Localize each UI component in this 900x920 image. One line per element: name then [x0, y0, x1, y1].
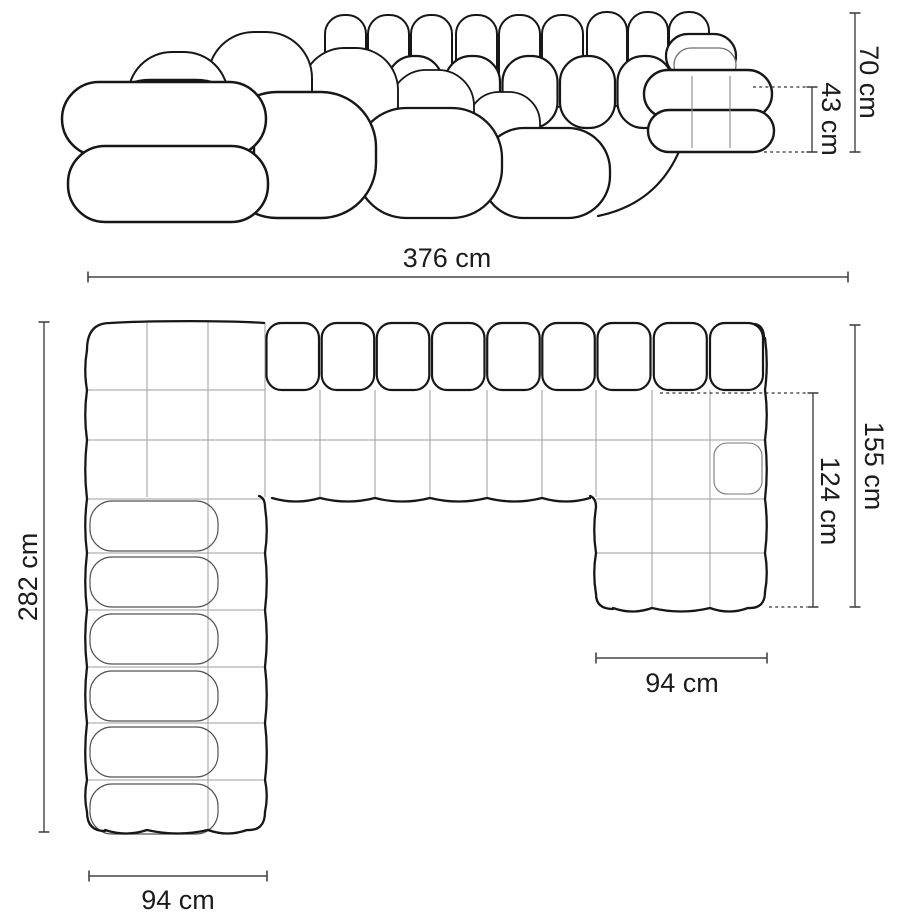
- top-plan-view: [85, 321, 767, 834]
- dim-label-right-chaise-inner-length: 124 cm: [815, 457, 845, 546]
- front-elevation-view: [62, 12, 774, 222]
- dim-label-total-height: 70 cm: [854, 45, 884, 119]
- sofa-dimension-diagram-svg: 70 cm 43 cm 376 cm 282 cm 155 cm 124 cm …: [0, 0, 900, 920]
- dim-label-total-depth: 282 cm: [13, 533, 43, 622]
- dim-label-left-chaise-width: 94 cm: [141, 885, 215, 915]
- sofa-dimension-diagram: 70 cm 43 cm 376 cm 282 cm 155 cm 124 cm …: [0, 0, 900, 920]
- dim-label-seat-height: 43 cm: [816, 82, 846, 156]
- dim-label-total-width: 376 cm: [403, 243, 492, 273]
- dim-label-right-chaise-length: 155 cm: [859, 422, 889, 511]
- dim-label-right-chaise-width: 94 cm: [645, 668, 719, 698]
